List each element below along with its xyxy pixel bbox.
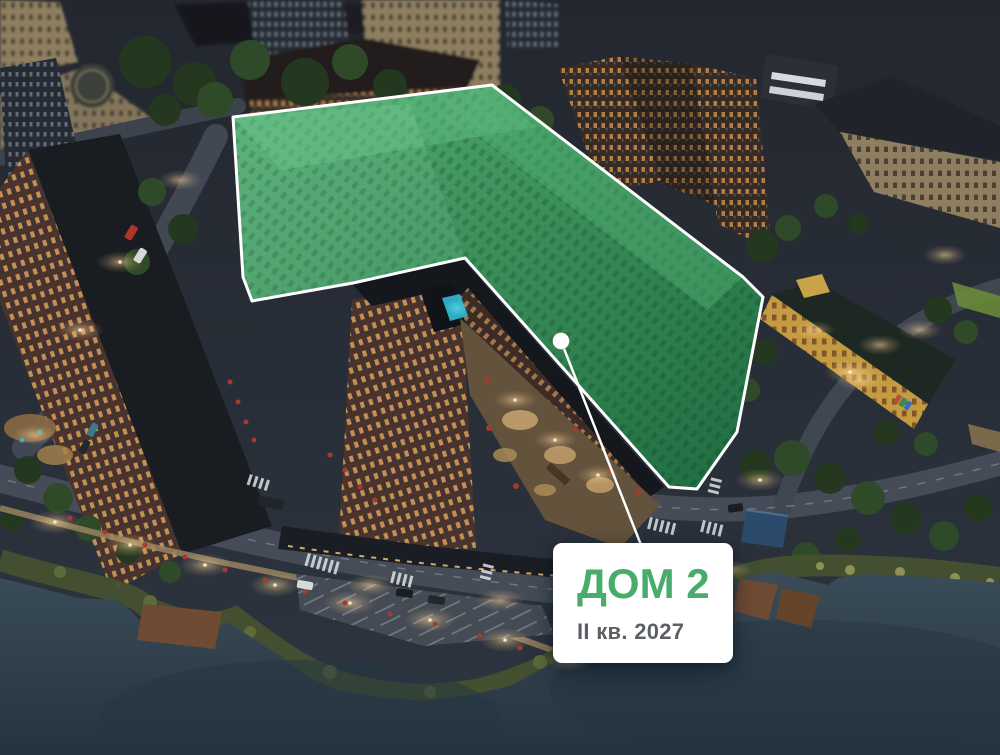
house-card-title: ДОМ 2 [577,563,733,605]
house-card-completion-date: II кв. 2027 [577,621,733,643]
masterplan-scene [0,0,1000,755]
masterplan-view: ДОМ 2 II кв. 2027 [0,0,1000,755]
marker-dot[interactable] [553,333,570,350]
house-card[interactable]: ДОМ 2 II кв. 2027 [553,543,733,663]
